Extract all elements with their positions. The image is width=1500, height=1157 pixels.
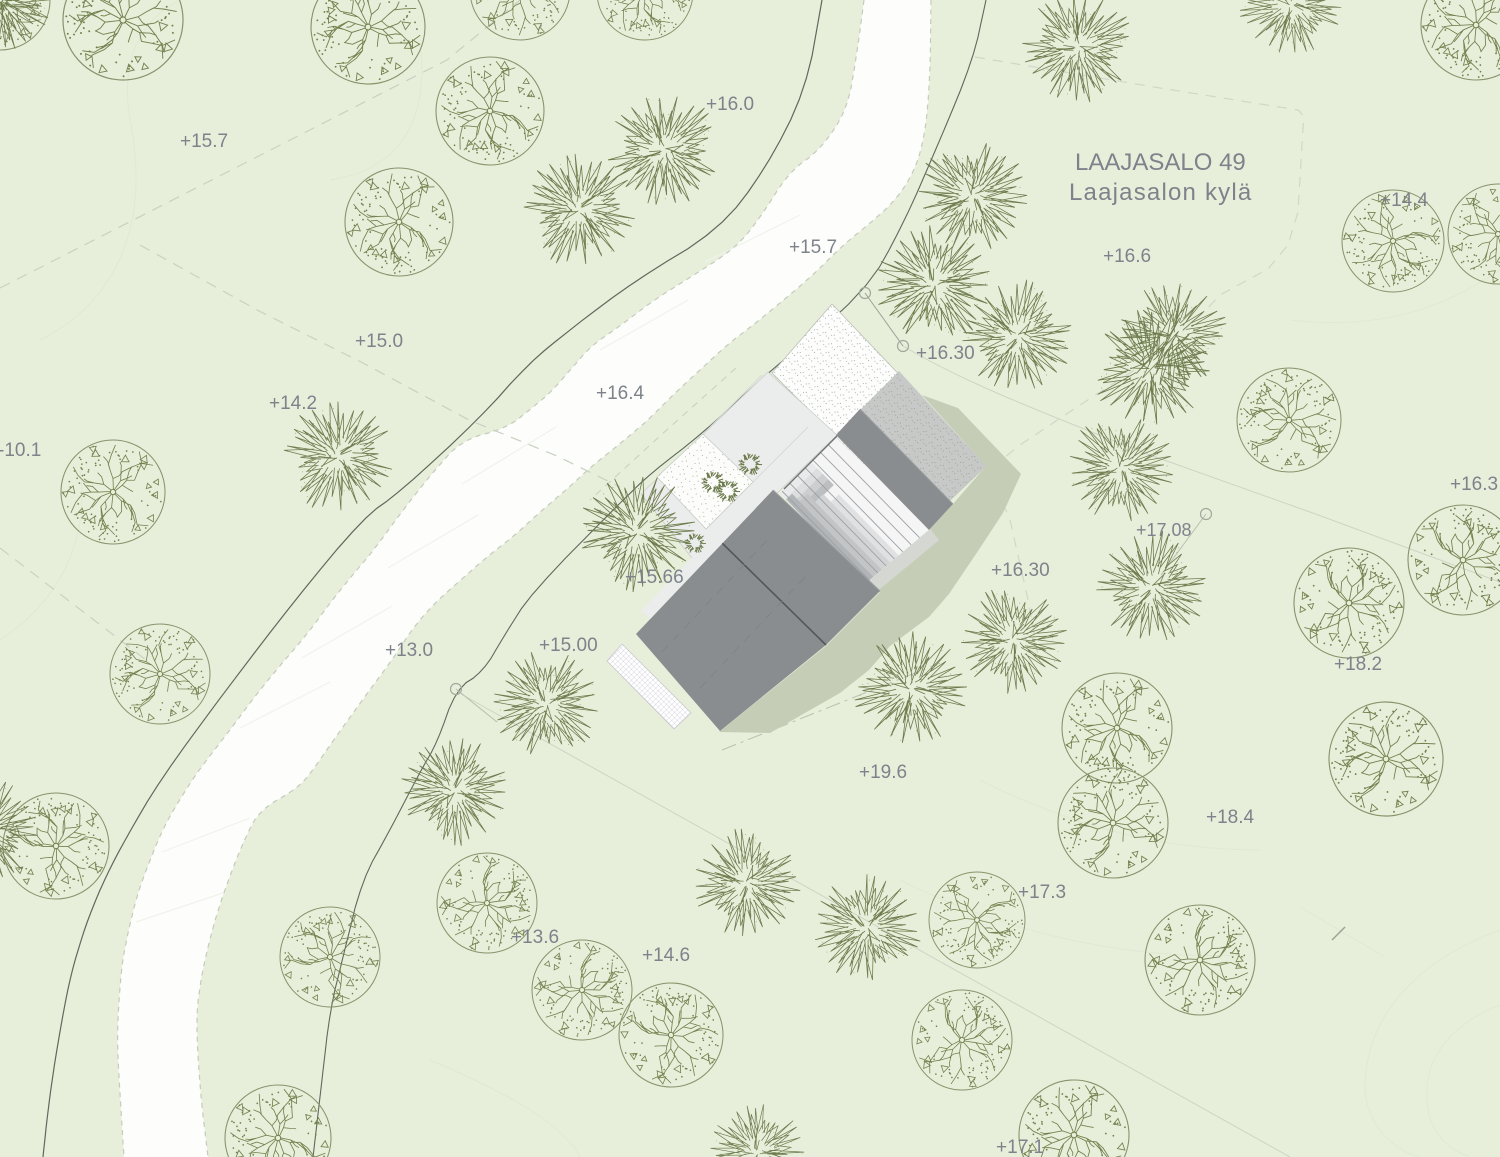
svg-text:+17.08: +17.08: [1136, 520, 1192, 540]
svg-text:+17.1: +17.1: [996, 1137, 1044, 1157]
svg-text:+13.0: +13.0: [385, 640, 433, 661]
svg-text:+15.66: +15.66: [625, 567, 684, 588]
svg-text:Laajasalon kylä: Laajasalon kylä: [1069, 179, 1252, 206]
svg-text:+14.6: +14.6: [642, 945, 690, 966]
svg-text:+16.3: +16.3: [1450, 474, 1498, 495]
svg-text:+16.0: +16.0: [706, 94, 754, 115]
svg-text:LAAJASALO 49: LAAJASALO 49: [1075, 149, 1246, 176]
svg-text:+13.6: +13.6: [511, 927, 559, 948]
svg-text:+15.7: +15.7: [789, 237, 837, 258]
svg-text:+15.7: +15.7: [180, 131, 228, 152]
svg-text:+18.2: +18.2: [1334, 654, 1382, 675]
svg-text:+18.4: +18.4: [1206, 807, 1255, 828]
svg-text:+16.30: +16.30: [991, 560, 1050, 581]
svg-text:+16.30: +16.30: [916, 343, 975, 364]
svg-text:+15.0: +15.0: [355, 331, 403, 352]
svg-text:+19.6: +19.6: [859, 762, 907, 783]
svg-text:+17.3: +17.3: [1018, 882, 1066, 903]
svg-text:-10.1: -10.1: [0, 440, 41, 461]
svg-text:+16.6: +16.6: [1103, 246, 1151, 267]
svg-text:+15.00: +15.00: [539, 635, 598, 656]
svg-text:+16.4: +16.4: [596, 383, 645, 404]
svg-text:+14.2: +14.2: [269, 393, 317, 414]
svg-text:+14.4: +14.4: [1380, 190, 1429, 211]
